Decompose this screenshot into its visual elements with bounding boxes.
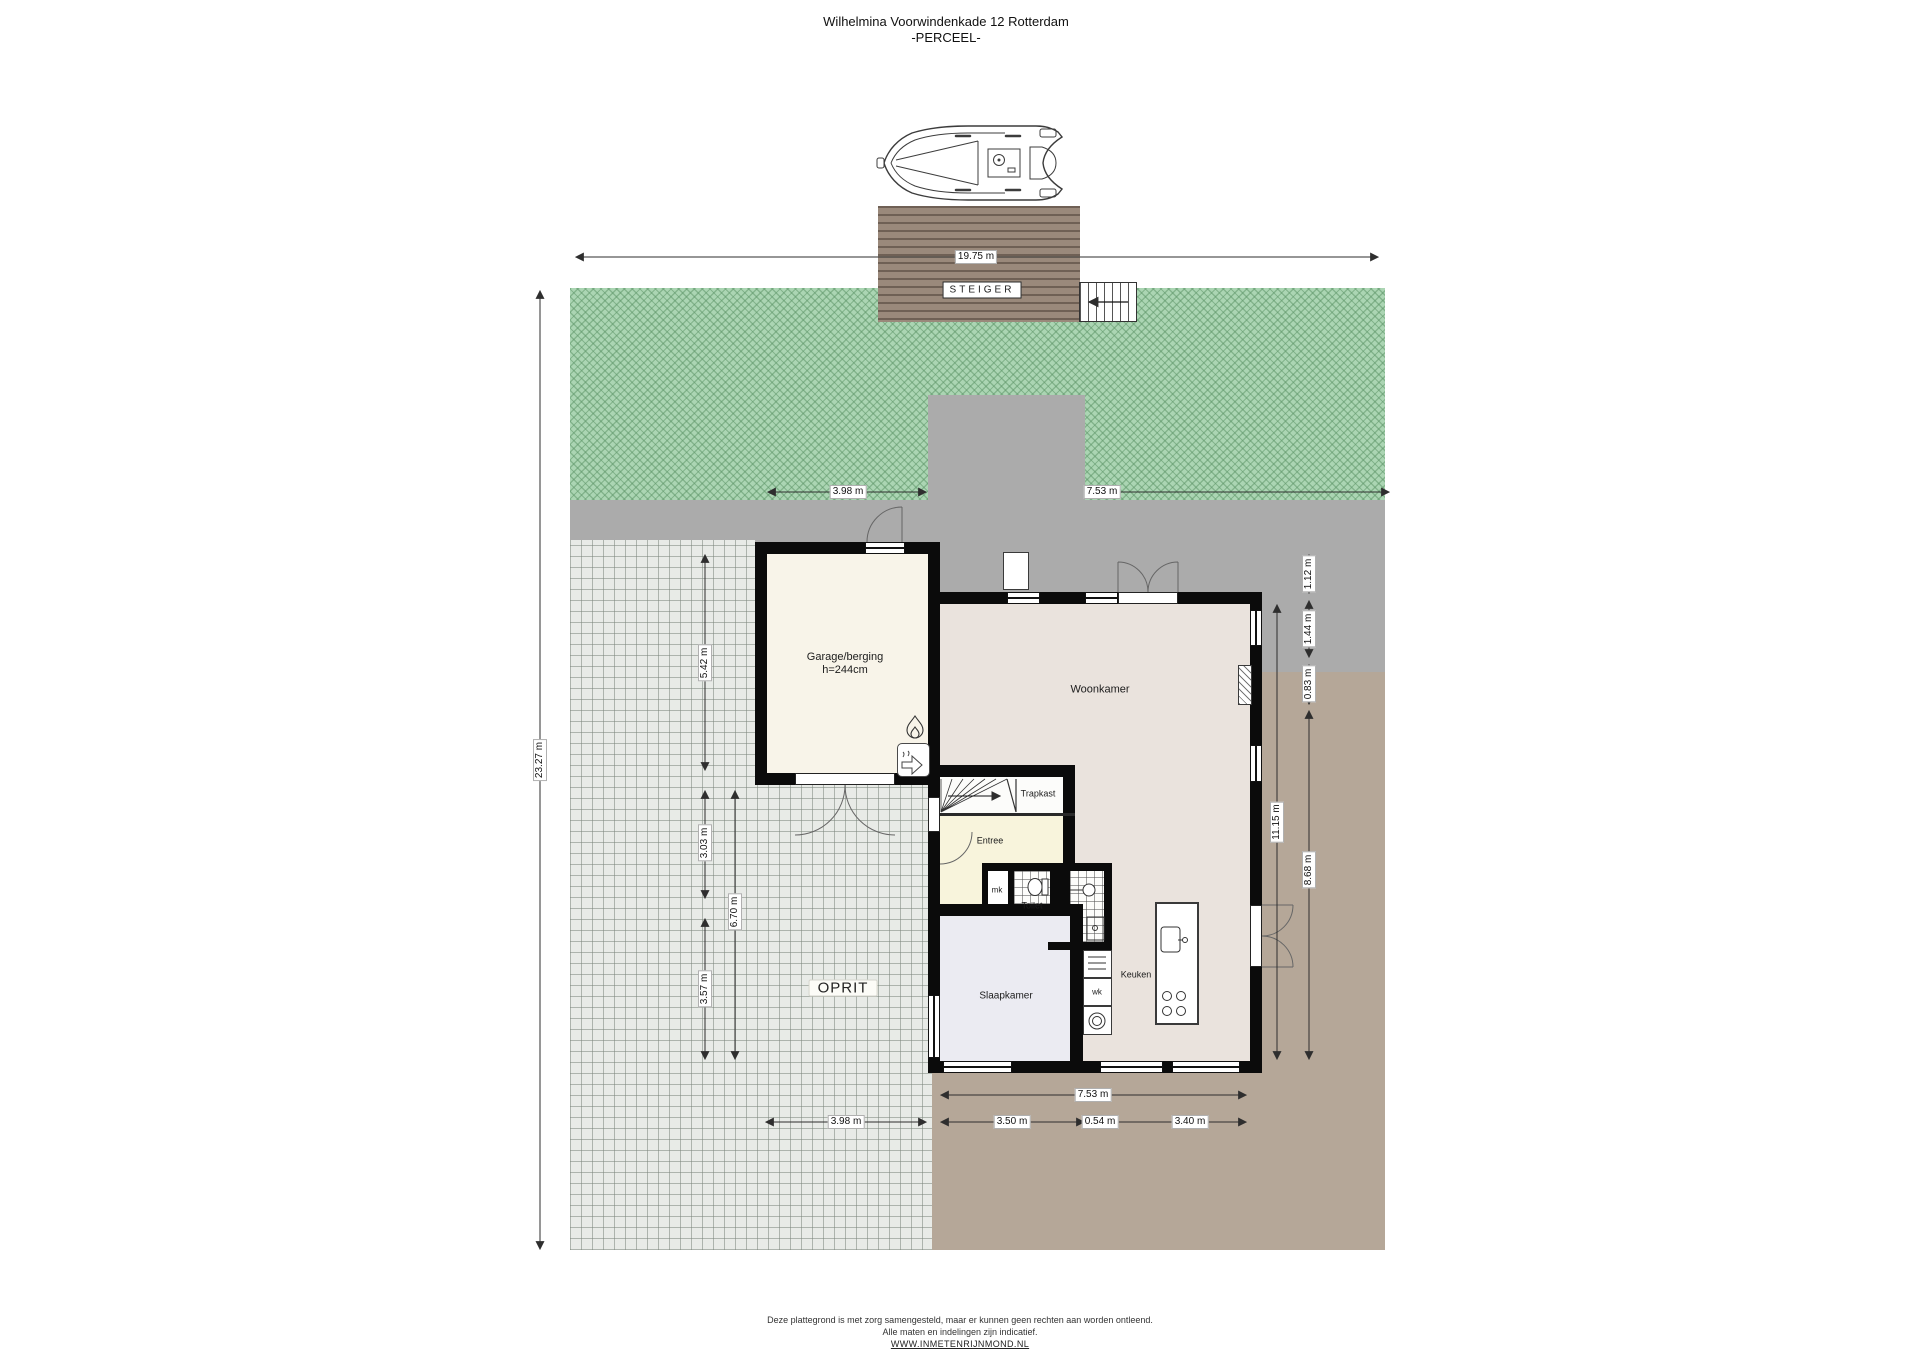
dim-right-a: 1.12 m [1302,556,1316,593]
wall-segment [1250,592,1262,610]
dim-garage-depth: 5.42 m [698,645,712,682]
wall-segment [1240,1061,1262,1073]
window [1085,592,1118,604]
window [943,1061,1012,1073]
pavement-east [1262,540,1385,672]
address-title: Wilhelmina Voorwindenkade 12 Rotterdam [823,14,1069,30]
wall-segment [934,765,1075,777]
dim-garage-top: 3.98 m [830,485,867,499]
outdoor-unit [1003,552,1029,590]
wall-segment [755,773,795,785]
pavement-block [928,395,1085,500]
wall-segment [1163,1061,1172,1073]
french-doors-east [1250,905,1262,967]
kitchen-island [1155,902,1199,1025]
front-door [928,797,940,832]
dim-bottom-c: 3.40 m [1172,1115,1209,1129]
dim-left-mid: 3.03 m [698,825,712,862]
dim-bottom-drive: 3.98 m [828,1115,865,1129]
steiger-label: STEIGER [943,282,1022,299]
dim-plot-width: 19.75 m [955,250,997,264]
heat-pump-icon [897,743,930,777]
room-label-slaapkamer: Slaapkamer [979,990,1032,1003]
footer-disclaimer-1: Deze plattegrond is met zorg samengestel… [767,1314,1153,1326]
garage-door-window [865,542,905,554]
window [928,995,940,1058]
dim-terrace-top: 7.53 m [1084,485,1121,499]
dim-bottom-house: 7.53 m [1075,1088,1112,1102]
room-label-mk: mk [992,884,1003,897]
wall-segment [755,542,865,554]
garage-name: Garage/berging [807,651,883,664]
wall-segment [1104,863,1112,950]
oprit-label: OPRIT [809,980,878,997]
wall-segment [1070,916,1083,1061]
room-label-woonkamer: Woonkamer [1070,684,1129,697]
boat-top-view-icon [877,126,1062,200]
window [1007,592,1040,604]
window [1100,1061,1163,1073]
wall-segment [928,1058,940,1061]
wall-segment [940,813,1075,816]
pavement-strip [570,500,1385,543]
wall-segment [1040,592,1085,604]
window [1250,745,1262,782]
room-label-garage: Garage/berging h=244cm [807,651,883,677]
dim-bottom-a: 3.50 m [994,1115,1031,1129]
room-label-keuken: Keuken [1121,969,1152,982]
french-doors-north [1118,592,1178,604]
wall-segment [755,542,767,785]
wall-segment [1250,967,1262,1073]
garage-height: h=244cm [807,664,883,677]
wall-segment [928,592,1007,604]
dock-steiger [878,206,1080,322]
wall-segment [928,904,1083,916]
wall-segment [928,1061,943,1073]
window [1250,610,1262,646]
room-label-toilet: Toilet [1021,900,1042,913]
wall-segment [1250,782,1262,905]
wall-segment [982,863,1112,871]
room-label-trapkast: Trapkast [1021,788,1056,801]
wall-segment [1063,777,1075,863]
footer-website: WWW.INMETENRIJNMOND.NL [767,1338,1153,1350]
dim-left-total: 6.70 m [728,894,742,931]
dim-bottom-b: 0.54 m [1082,1115,1119,1129]
room-label-wk: wk [1092,986,1102,999]
chimney-hatch-icon [1238,665,1252,705]
driveway-south [570,785,932,1250]
bedroom-floor [940,916,1070,1061]
window [1172,1061,1240,1073]
garage-double-door [795,773,895,785]
appliance-cabinet [1083,950,1112,978]
footer: Deze plattegrond is met zorg samengestel… [767,1314,1153,1350]
wall-segment [928,785,940,797]
dim-right-house: 11.15 m [1270,801,1284,842]
wall-segment [1012,1061,1100,1073]
dim-left-low: 3.57 m [698,971,712,1008]
washing-machine-cabinet [1083,1006,1112,1035]
plan-subtitle: -PERCEEL- [823,30,1069,46]
dim-right-b: 1.44 m [1302,611,1316,648]
floorplan-page: Wilhelmina Voorwindenkade 12 Rotterdam -… [0,0,1920,1358]
dock-stairs-icon [1079,282,1137,322]
footer-disclaimer-2: Alle maten en indelingen zijn indicatief… [767,1326,1153,1338]
dim-plot-depth: 23.27 m [533,739,547,781]
room-label-entree: Entree [977,835,1004,848]
dim-right-low: 8.68 m [1302,852,1316,889]
dim-right-c: 0.83 m [1302,666,1316,703]
page-title: Wilhelmina Voorwindenkade 12 Rotterdam -… [823,14,1069,46]
pavement-north-terrace [940,540,1262,592]
terrace-east [1262,672,1385,1250]
